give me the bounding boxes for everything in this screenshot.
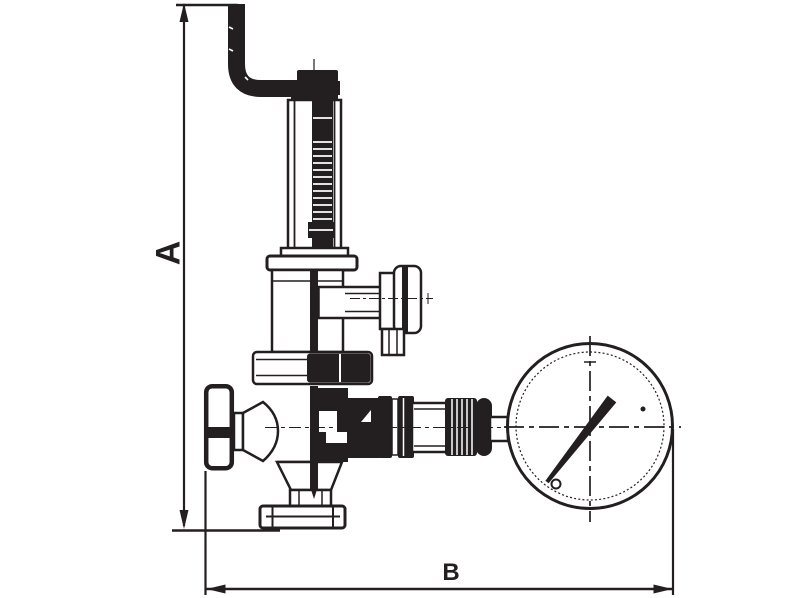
svg-text:A: A (150, 241, 188, 266)
svg-text:B: B (442, 559, 459, 586)
